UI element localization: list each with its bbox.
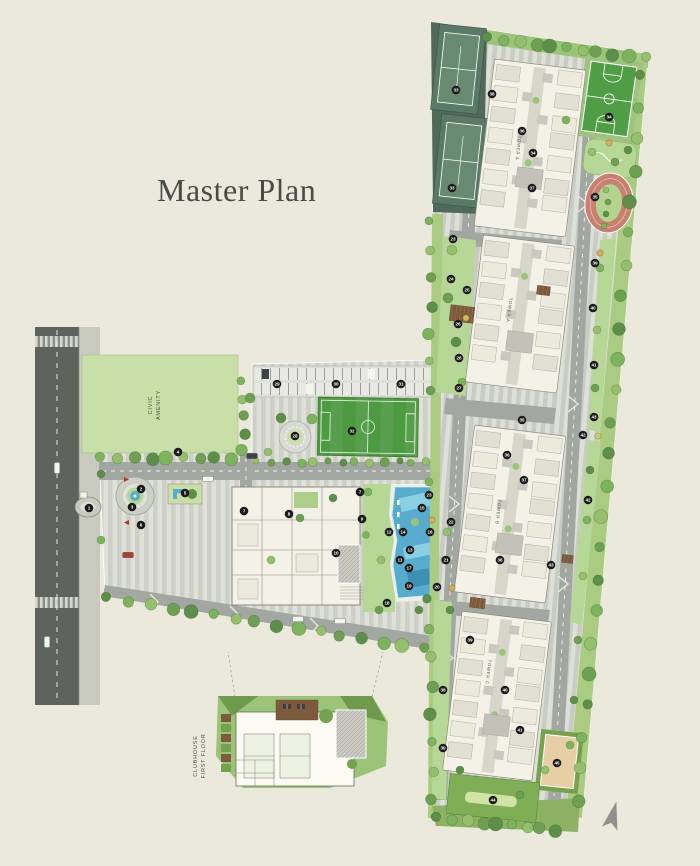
svg-text:40: 40 — [590, 306, 596, 311]
tree-icon — [576, 732, 587, 743]
svg-text:43: 43 — [591, 415, 597, 420]
svg-text:23: 23 — [426, 493, 432, 498]
svg-text:30: 30 — [333, 382, 339, 387]
tree-icon — [329, 494, 337, 502]
tree-icon — [591, 384, 599, 392]
tree-icon — [308, 457, 317, 466]
tree-icon — [236, 444, 248, 456]
tree-icon — [562, 42, 572, 52]
tree-icon — [566, 741, 574, 749]
tree-icon — [489, 817, 503, 831]
plan-marker: 43 — [590, 413, 599, 422]
svg-text:42: 42 — [580, 433, 586, 438]
tree-icon — [426, 386, 435, 395]
plan-marker: 35 — [591, 193, 600, 202]
svg-text:4: 4 — [177, 450, 180, 455]
tree-icon — [240, 429, 251, 440]
tree-icon — [612, 385, 622, 395]
tree-icon — [377, 556, 385, 564]
tree-icon — [423, 328, 435, 340]
tree-icon — [424, 708, 437, 721]
tree-icon — [601, 223, 607, 229]
svg-text:29: 29 — [274, 382, 280, 387]
tree-icon — [159, 451, 173, 465]
car-icon — [54, 463, 60, 474]
tree-icon — [145, 598, 157, 610]
car-icon — [335, 618, 346, 624]
svg-text:38: 38 — [489, 92, 495, 97]
tree-icon — [426, 246, 435, 255]
svg-text:19: 19 — [406, 584, 412, 589]
tree-icon — [264, 448, 272, 456]
plan-marker: 23 — [425, 491, 434, 500]
plan-marker: 30 — [332, 380, 341, 389]
plan-marker: 13 — [406, 546, 415, 555]
tree-icon — [268, 459, 275, 466]
shrub-icon — [449, 585, 455, 591]
svg-text:36: 36 — [504, 453, 510, 458]
tree-icon — [601, 480, 614, 493]
tree-icon — [499, 35, 510, 46]
plan-marker: 35 — [518, 416, 527, 425]
tree-icon — [603, 187, 609, 193]
plan-marker: 43 — [547, 561, 556, 570]
tree-icon — [611, 352, 625, 366]
tree-icon — [248, 615, 260, 627]
tree-icon — [631, 133, 643, 145]
svg-text:32: 32 — [349, 429, 355, 434]
svg-text:14: 14 — [400, 530, 406, 535]
tower-a-lower-building — [465, 235, 574, 393]
basketball-court — [575, 54, 644, 143]
plan-marker: 19 — [405, 582, 414, 591]
tree-icon — [365, 459, 374, 468]
tree-icon — [298, 459, 307, 468]
clubhouse-building — [232, 487, 364, 605]
plan-marker: 38 — [439, 686, 448, 695]
plan-marker: 7 — [240, 507, 249, 516]
plan-marker: 29 — [273, 380, 282, 389]
tree-icon — [574, 636, 582, 644]
svg-text:33: 33 — [449, 186, 455, 191]
tree-icon — [591, 605, 603, 617]
tree-icon — [507, 820, 517, 830]
plan-marker: 42 — [579, 431, 588, 440]
svg-text:21: 21 — [443, 558, 449, 563]
plan-marker: 15 — [418, 504, 427, 513]
svg-text:12: 12 — [386, 530, 392, 535]
tree-icon — [307, 414, 317, 424]
svg-text:33: 33 — [453, 88, 459, 93]
svg-text:7: 7 — [243, 509, 246, 514]
tree-icon — [425, 651, 436, 662]
svg-text:7: 7 — [359, 490, 362, 495]
tree-icon — [633, 103, 644, 114]
tree-icon — [415, 606, 423, 614]
tree-icon — [622, 49, 636, 63]
svg-text:36: 36 — [519, 129, 525, 134]
shrub-icon — [597, 250, 603, 256]
tree-icon — [424, 624, 434, 634]
plan-marker: 11 — [396, 556, 405, 565]
car-icon — [203, 476, 214, 482]
tree-icon — [531, 39, 544, 52]
tree-icon — [562, 116, 570, 124]
plan-marker: 14 — [399, 528, 408, 537]
plan-marker: 36 — [503, 451, 512, 460]
tree-icon — [582, 667, 596, 681]
plan-marker: 33 — [448, 184, 457, 193]
tree-icon — [425, 217, 433, 225]
tree-icon — [196, 453, 207, 464]
tree-icon — [270, 620, 283, 633]
tree-icon — [593, 575, 604, 586]
tree-icon — [595, 542, 605, 552]
tree-icon — [427, 681, 439, 693]
tree-icon — [615, 290, 627, 302]
tree-icon — [624, 146, 632, 154]
plan-marker: 27 — [455, 384, 464, 393]
tree-icon — [340, 459, 347, 466]
tree-icon — [543, 39, 557, 53]
right-strip — [428, 22, 648, 832]
plan-marker: 44 — [489, 796, 498, 805]
tree-icon — [429, 767, 439, 777]
tree-icon — [225, 453, 238, 466]
tree-icon — [378, 637, 391, 650]
tree-icon — [426, 794, 437, 805]
tree-icon — [613, 323, 626, 336]
football-field — [318, 397, 419, 457]
svg-text:2: 2 — [140, 487, 143, 492]
tree-icon — [325, 458, 331, 464]
tree-icon — [541, 766, 549, 774]
plan-marker: 41 — [516, 726, 525, 735]
tree-icon — [456, 766, 464, 774]
guard-house — [80, 492, 87, 498]
pergola-deck — [469, 597, 485, 609]
tree-icon — [425, 357, 433, 365]
plan-marker: 32 — [348, 427, 357, 436]
svg-text:6: 6 — [140, 523, 143, 528]
svg-text:24: 24 — [448, 277, 454, 282]
svg-text:40: 40 — [502, 688, 508, 693]
plan-marker: 3 — [128, 503, 137, 512]
tree-icon — [447, 815, 458, 826]
tree-icon — [641, 52, 651, 62]
tree-icon — [603, 211, 609, 217]
clubhouse-detail-plan — [216, 652, 388, 788]
plan-marker: 41 — [590, 361, 599, 370]
plan-marker: 26 — [455, 354, 464, 363]
plan-marker: 17 — [405, 564, 414, 573]
tree-icon — [605, 418, 616, 429]
tree-icon — [586, 466, 594, 474]
tree-icon — [334, 631, 345, 642]
tree-icon — [611, 158, 619, 166]
svg-text:15: 15 — [419, 506, 425, 511]
plan-marker: 18 — [383, 599, 392, 608]
master-plan-drawing: CIVIC AMENITY TOWER A TOWER A TOWER B TO… — [0, 0, 700, 866]
tree-icon — [621, 260, 632, 271]
pergola-deck — [449, 305, 475, 324]
svg-text:31: 31 — [398, 382, 404, 387]
svg-text:18: 18 — [384, 601, 390, 606]
tower-c-building — [443, 611, 552, 781]
tree-icon — [443, 528, 451, 536]
plan-marker: 34 — [529, 149, 538, 158]
plan-marker: 39 — [439, 744, 448, 753]
plan-marker: 1 — [85, 504, 94, 513]
tree-icon — [443, 293, 453, 303]
svg-text:8: 8 — [288, 512, 291, 517]
tennis-court-1 — [431, 24, 487, 114]
svg-text:38: 38 — [497, 558, 503, 563]
tree-icon — [482, 32, 492, 42]
plan-marker: 21 — [442, 556, 451, 565]
tree-icon — [292, 622, 306, 636]
svg-text:41: 41 — [591, 363, 597, 368]
plan-marker: 22 — [447, 518, 456, 527]
svg-text:38: 38 — [440, 688, 446, 693]
wood-deck — [276, 700, 318, 720]
tree-icon — [380, 457, 389, 466]
tree-icon — [574, 762, 586, 774]
tree-icon — [578, 45, 589, 56]
plan-marker: 38 — [496, 556, 505, 565]
svg-text:1: 1 — [88, 506, 91, 511]
tree-icon — [579, 572, 587, 580]
tree-icon — [267, 556, 275, 564]
tree-icon — [208, 452, 220, 464]
tree-icon — [97, 536, 105, 544]
car-icon — [123, 552, 134, 558]
tree-icon — [623, 227, 633, 237]
plan-marker: 24 — [447, 275, 456, 284]
plan-marker: 16 — [426, 528, 435, 537]
tree-icon — [395, 639, 409, 653]
tree-icon — [606, 49, 619, 62]
svg-text:11: 11 — [398, 558, 403, 563]
tree-icon — [629, 165, 642, 178]
master-plan-page: Master Plan — [0, 0, 700, 866]
plan-marker: 39 — [591, 259, 600, 268]
tree-icon — [428, 737, 437, 746]
svg-text:34: 34 — [606, 115, 612, 120]
svg-text:42: 42 — [585, 498, 591, 503]
svg-text:25: 25 — [464, 288, 470, 293]
svg-text:9: 9 — [361, 517, 364, 522]
tree-icon — [231, 614, 242, 625]
shrub-icon — [429, 517, 435, 523]
plan-marker: 2 — [137, 485, 146, 494]
tree-icon — [425, 478, 433, 486]
tree-icon — [605, 199, 611, 205]
plan-marker: 38 — [488, 90, 497, 99]
tree-icon — [123, 597, 134, 608]
plan-marker: 37 — [520, 476, 529, 485]
plan-marker: 9 — [358, 515, 367, 524]
plan-marker: 34 — [605, 113, 614, 122]
svg-text:27: 27 — [456, 386, 462, 391]
tree-icon — [101, 592, 111, 602]
tree-icon — [283, 458, 291, 466]
tree-icon — [95, 452, 105, 462]
tree-icon — [431, 812, 441, 822]
clubhouse-label-2: FIRST FLOOR — [201, 733, 207, 778]
svg-text:35: 35 — [592, 195, 598, 200]
tree-icon — [363, 532, 370, 539]
shrub-icon — [606, 140, 612, 146]
svg-text:22: 22 — [448, 520, 454, 525]
plan-marker: 26 — [454, 320, 463, 329]
plan-marker: 4 — [174, 448, 183, 457]
tree-icon — [516, 791, 524, 799]
tree-icon — [422, 458, 430, 466]
tree-icon — [356, 632, 368, 644]
tree-icon — [296, 514, 304, 522]
north-arrow-icon — [602, 799, 624, 830]
tree-icon — [146, 453, 159, 466]
car-icon — [44, 637, 50, 648]
tree-icon — [350, 458, 358, 466]
plan-marker: 36 — [518, 127, 527, 136]
svg-text:34: 34 — [530, 151, 536, 156]
tree-icon — [184, 605, 198, 619]
svg-text:37: 37 — [521, 478, 527, 483]
tree-icon — [590, 46, 602, 58]
plan-marker: 8 — [285, 510, 294, 519]
pergola-deck — [562, 554, 574, 563]
tree-icon — [549, 825, 562, 838]
svg-text:28: 28 — [292, 434, 298, 439]
tree-icon — [623, 195, 637, 209]
tree-icon — [515, 36, 527, 48]
svg-text:43: 43 — [548, 563, 554, 568]
svg-text:39: 39 — [592, 261, 598, 266]
tree-icon — [112, 453, 123, 464]
svg-text:17: 17 — [406, 566, 412, 571]
tree-icon — [533, 822, 545, 834]
svg-text:41: 41 — [517, 728, 523, 733]
tree-icon — [423, 594, 432, 603]
plan-marker: 28 — [291, 432, 300, 441]
tree-icon — [364, 488, 372, 496]
tree-icon — [375, 606, 383, 614]
svg-text:26: 26 — [456, 356, 462, 361]
tree-icon — [97, 470, 105, 478]
tree-icon — [237, 377, 245, 385]
tree-icon — [523, 822, 534, 833]
courtyard — [294, 492, 318, 508]
car-icon — [247, 453, 258, 459]
tree-icon — [583, 516, 591, 524]
tree-icon — [167, 603, 180, 616]
tree-icon — [451, 337, 461, 347]
civic-amenity-label-1: CIVIC — [148, 396, 154, 415]
plan-marker: 5 — [181, 489, 190, 498]
svg-text:23: 23 — [450, 237, 456, 242]
tree-icon — [276, 413, 286, 423]
tree-icon — [317, 626, 327, 636]
roof-deck — [338, 545, 360, 583]
tree-icon — [239, 411, 249, 421]
tree-icon — [397, 458, 403, 464]
svg-text:26: 26 — [455, 322, 461, 327]
tree-icon — [420, 643, 430, 653]
plan-marker: 12 — [385, 528, 394, 537]
tree-icon — [570, 696, 578, 704]
tree-icon — [407, 459, 414, 466]
plan-marker: 33 — [452, 86, 461, 95]
plan-marker: 37 — [528, 184, 537, 193]
tree-icon — [245, 393, 255, 403]
svg-text:39: 39 — [467, 638, 473, 643]
civic-amenity-label-2: AMENITY — [156, 390, 162, 420]
tree-icon — [129, 452, 141, 464]
tree-icon — [588, 148, 596, 156]
plan-marker: 7 — [356, 488, 365, 497]
tree-icon — [603, 447, 615, 459]
svg-text:39: 39 — [440, 746, 446, 751]
tree-icon — [593, 326, 601, 334]
pergola-deck — [537, 285, 551, 296]
shrub-icon — [595, 433, 601, 439]
tree-icon — [209, 609, 219, 619]
tree-icon — [583, 700, 593, 710]
plan-marker: 31 — [397, 380, 406, 389]
tree-icon — [446, 606, 454, 614]
svg-text:44: 44 — [490, 798, 496, 803]
plan-marker: 40 — [501, 686, 510, 695]
tree-icon — [594, 510, 608, 524]
svg-text:20: 20 — [434, 585, 440, 590]
tree-icon — [427, 302, 438, 313]
car-icon — [293, 616, 304, 622]
shrub-icon — [463, 315, 469, 321]
plan-marker: 45 — [553, 759, 562, 768]
plan-marker: 6 — [137, 521, 146, 530]
tree-icon — [447, 245, 457, 255]
plan-marker: 10 — [332, 549, 341, 558]
plan-marker: 23 — [449, 235, 458, 244]
svg-text:3: 3 — [131, 505, 134, 510]
svg-text:10: 10 — [333, 551, 339, 556]
clubhouse-label-1: CLUBHOUSE — [193, 735, 199, 776]
svg-text:13: 13 — [407, 548, 413, 553]
roof-plan — [336, 710, 366, 758]
tree-icon — [584, 637, 597, 650]
plan-marker: 25 — [463, 286, 472, 295]
svg-text:45: 45 — [554, 761, 560, 766]
plan-marker: 40 — [589, 304, 598, 313]
tree-icon — [462, 815, 474, 827]
svg-text:16: 16 — [427, 530, 433, 535]
tree-icon — [572, 795, 585, 808]
tree-icon — [426, 273, 436, 283]
plan-marker: 39 — [466, 636, 475, 645]
plan-marker: 20 — [433, 583, 442, 592]
svg-text:37: 37 — [529, 186, 535, 191]
svg-text:5: 5 — [184, 491, 187, 496]
svg-text:35: 35 — [519, 418, 525, 423]
tree-icon — [635, 70, 645, 80]
plan-marker: 42 — [584, 496, 593, 505]
